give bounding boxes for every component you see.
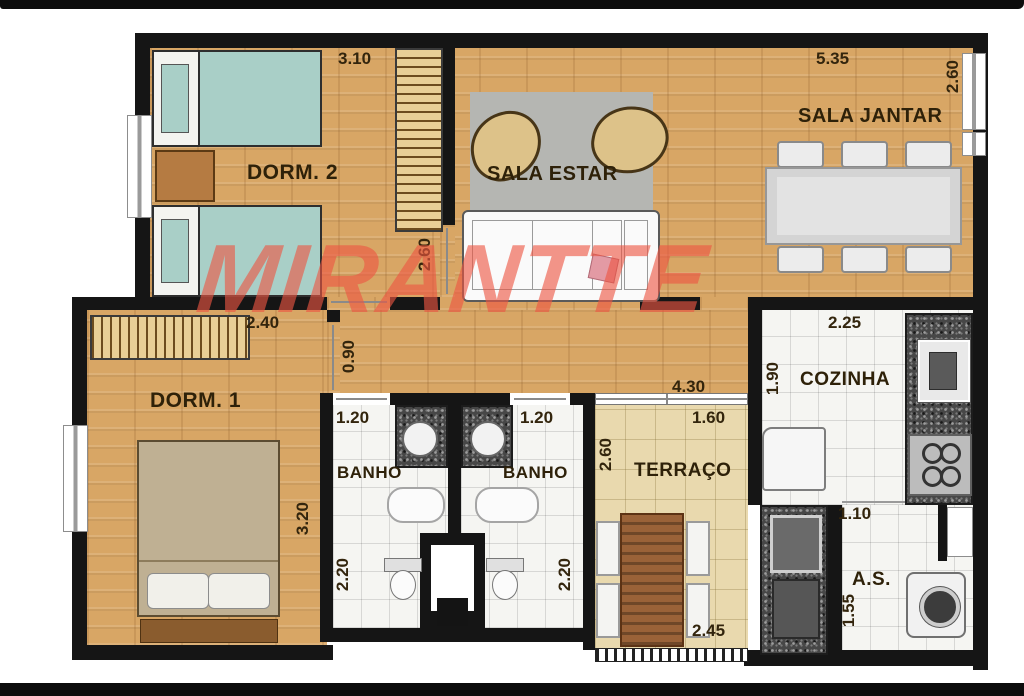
single-bed xyxy=(152,50,322,147)
double-bed xyxy=(137,440,280,617)
frame-bottom-bar xyxy=(0,683,1024,696)
laundry-counter xyxy=(760,505,828,655)
bed-pillow xyxy=(161,64,189,133)
refrigerator xyxy=(762,427,826,491)
dimension-banho2-top: 1.20 xyxy=(520,409,553,426)
sliding-door-rail xyxy=(596,398,747,400)
sink-basin xyxy=(470,421,506,457)
dimension-banho2-left: 2.20 xyxy=(556,558,573,591)
sliding-door-divider xyxy=(666,394,668,404)
wall xyxy=(583,405,595,650)
dimension-dorm1-right: 3.20 xyxy=(294,502,311,535)
dining-chair xyxy=(777,246,824,273)
dorm1-door-leaf xyxy=(332,325,334,390)
burner xyxy=(940,466,961,487)
bed-bench xyxy=(140,619,278,643)
bed-pillow-area xyxy=(154,52,200,145)
terrace-table xyxy=(620,513,684,647)
dimension-servico-top: 1.10 xyxy=(838,505,871,522)
dimension-banho1-top: 1.20 xyxy=(336,409,369,426)
dimension-terraco-bottom: 2.45 xyxy=(692,622,725,639)
sink-bowl xyxy=(929,352,957,390)
dining-chair xyxy=(841,246,888,273)
toilet-bowl xyxy=(492,570,518,600)
sink-basin xyxy=(402,421,438,457)
bed-pillow xyxy=(147,573,209,609)
bed-pillow xyxy=(208,573,270,609)
dining-chair xyxy=(841,141,888,168)
burner xyxy=(940,443,961,464)
wall xyxy=(748,308,762,505)
wall xyxy=(748,297,973,310)
watermark: MIRANTTE xyxy=(193,230,712,327)
washboard xyxy=(772,579,820,639)
room-label-sala-estar: SALA ESTAR xyxy=(487,164,618,184)
terrace-chair xyxy=(686,521,710,576)
room-label-servico: A.S. xyxy=(852,570,891,589)
dimension-hall-opening: 0.90 xyxy=(340,340,357,373)
room-label-banho1: BANHO xyxy=(337,464,402,481)
floor-kitchen-doorway xyxy=(700,297,748,310)
room-label-dorm2: DORM. 2 xyxy=(247,162,338,183)
terrace-chair xyxy=(596,583,620,638)
jantar-small-window xyxy=(962,132,986,156)
dimension-cozinha-left: 1.90 xyxy=(764,362,781,395)
blanket-fold xyxy=(139,560,278,562)
wall xyxy=(570,393,595,405)
stove-cooktop xyxy=(908,434,972,496)
dorm2-window xyxy=(127,115,152,218)
bed-pillow-area xyxy=(154,207,200,295)
dimension-servico-left: 1.55 xyxy=(840,594,857,627)
laundry-tank xyxy=(770,515,822,573)
washing-machine xyxy=(906,572,966,638)
banho1-door-leaf xyxy=(336,398,387,400)
floorplan-image: DORM. 2 SALA ESTAR SALA JANTAR DORM. 1 B… xyxy=(0,0,1024,696)
frame-top-bar xyxy=(0,0,1024,9)
room-label-dorm1: DORM. 1 xyxy=(150,390,241,411)
room-label-sala-jantar: SALA JANTAR xyxy=(798,106,942,126)
wall xyxy=(72,645,333,660)
wall xyxy=(828,505,842,657)
kitchen-sink xyxy=(918,340,970,402)
room-label-terraco: TERRAÇO xyxy=(634,461,731,480)
dimension-jantar-top: 5.35 xyxy=(816,50,849,67)
bed-pillow xyxy=(161,219,189,283)
terrace-railing xyxy=(595,648,748,662)
bathtub xyxy=(475,487,539,523)
dorm1-window xyxy=(63,425,88,532)
servico-door-leaf xyxy=(938,503,947,561)
wall xyxy=(320,393,333,642)
dimension-terraco-top: 1.60 xyxy=(692,409,725,426)
dimension-terraco-left: 2.60 xyxy=(597,438,614,471)
dimension-hall-width: 4.30 xyxy=(672,378,705,395)
terrace-chair xyxy=(596,521,620,576)
dimension-jantar-right: 2.60 xyxy=(944,60,961,93)
washer-door xyxy=(920,587,960,627)
room-label-cozinha: COZINHA xyxy=(800,370,890,389)
wall xyxy=(135,33,988,48)
bathtub xyxy=(387,487,445,523)
dining-table-top xyxy=(777,177,950,235)
dimension-cozinha-top: 2.25 xyxy=(828,314,861,331)
room-label-banho2: BANHO xyxy=(503,464,568,481)
jantar-window xyxy=(962,53,986,130)
duct-shaft-core xyxy=(437,598,468,626)
dimension-banho1-left: 2.20 xyxy=(334,558,351,591)
dimension-dorm2-top: 3.10 xyxy=(338,50,371,67)
wardrobe xyxy=(395,48,443,232)
servico-door-recess xyxy=(947,507,973,557)
dining-chair xyxy=(905,141,952,168)
banho2-door-leaf xyxy=(514,398,566,400)
wall xyxy=(320,628,592,642)
toilet-bowl xyxy=(390,570,416,600)
dining-table xyxy=(765,167,962,245)
dining-chair xyxy=(905,246,952,273)
nightstand xyxy=(155,150,215,202)
dining-chair xyxy=(777,141,824,168)
